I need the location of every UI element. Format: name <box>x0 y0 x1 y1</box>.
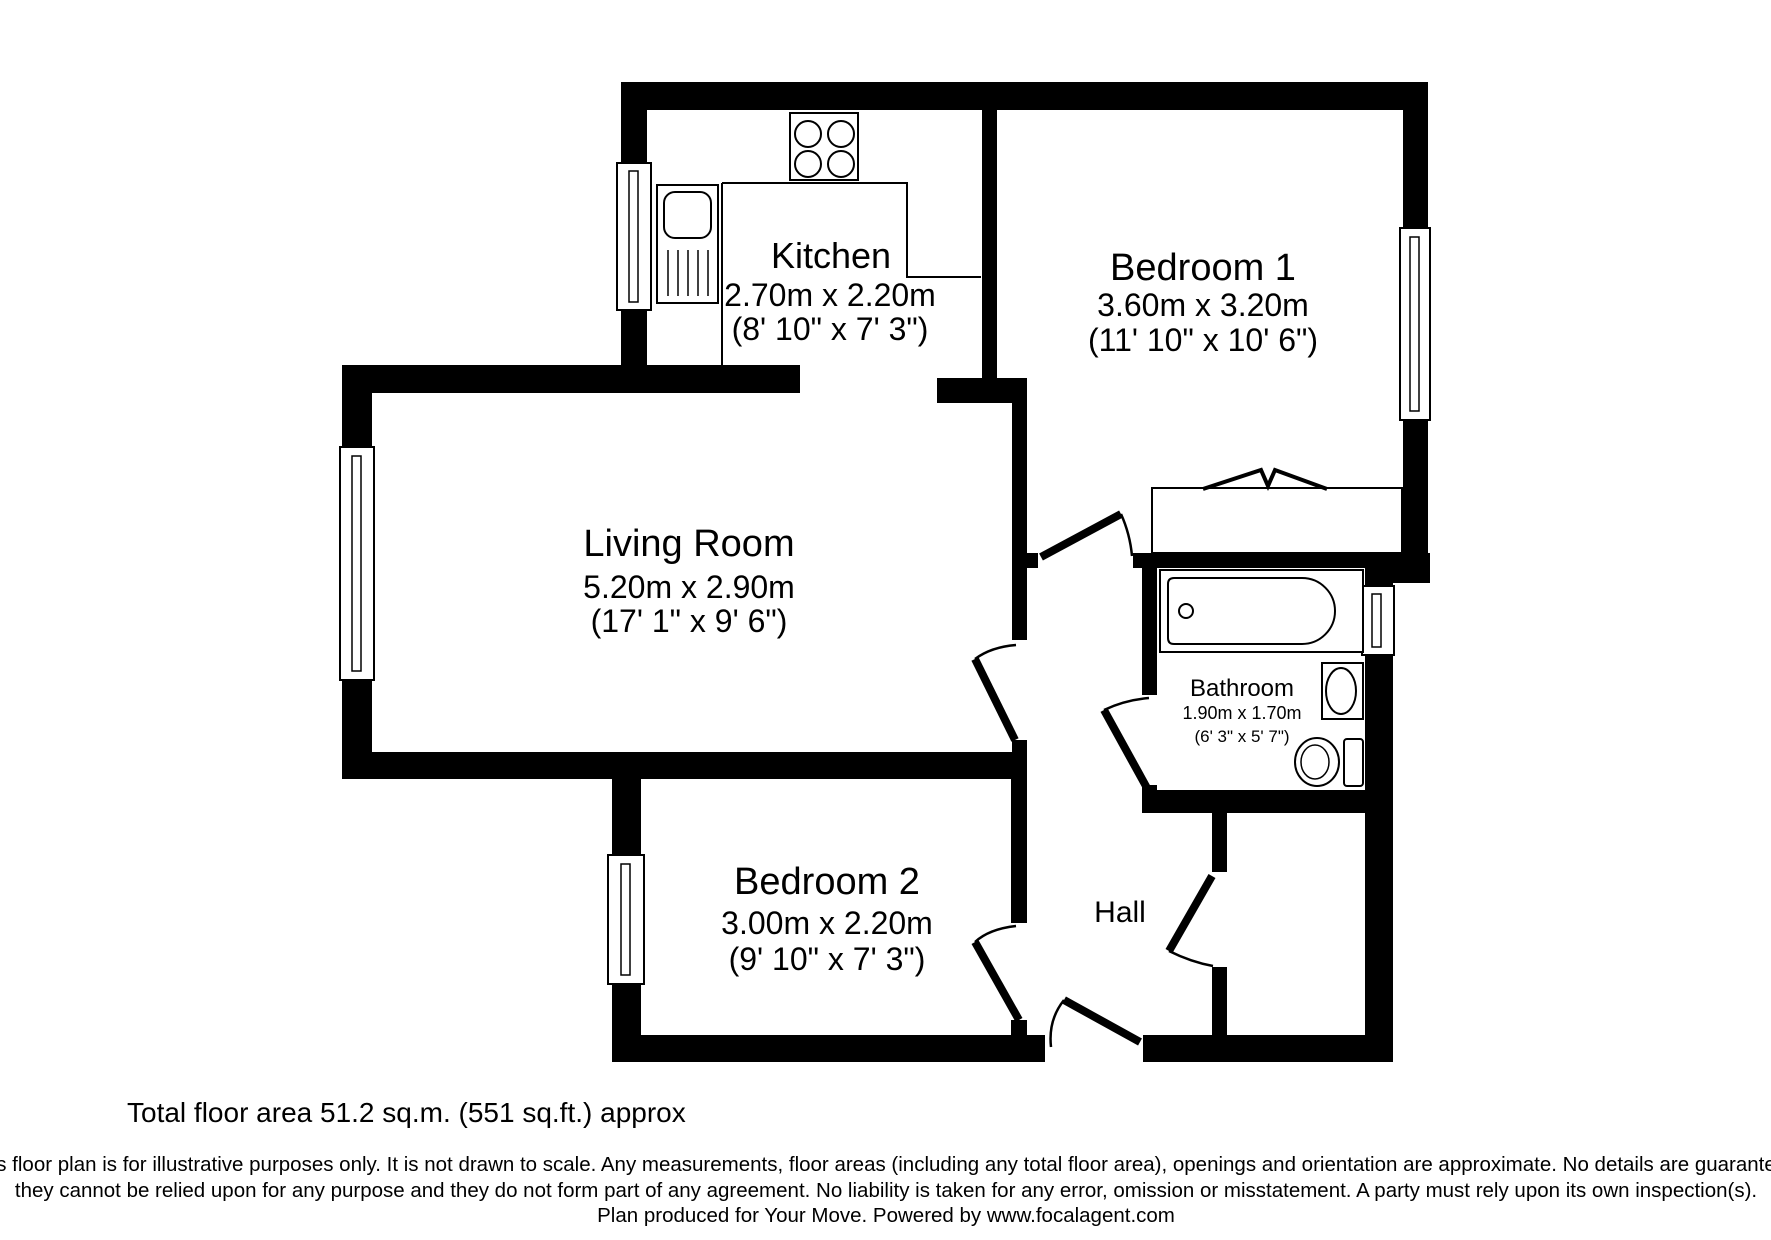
living-room-door <box>975 645 1016 740</box>
bathroom-dimensions-metric: 1.90m x 1.70m <box>1182 703 1301 723</box>
wall-living-east-lower <box>1012 740 1027 779</box>
window-kitchen-west <box>617 163 651 310</box>
footer: Total floor area 51.2 sq.m. (551 sq.ft.)… <box>0 1097 1771 1227</box>
kitchen-dimensions-imperial: (8' 10" x 7' 3") <box>732 311 929 347</box>
floor-plan-drawing: Kitchen 2.70m x 2.20m (8' 10" x 7' 3") B… <box>0 0 1771 1240</box>
wall-bedroom2-east <box>1011 779 1027 923</box>
wall-bathroom-west <box>1142 568 1157 695</box>
bathtub <box>1160 570 1363 652</box>
living-room-dimensions-metric: 5.20m x 2.90m <box>583 569 795 605</box>
wall-store-west-lower <box>1212 967 1227 1035</box>
bedroom2-dimensions-imperial: (9' 10" x 7' 3") <box>729 941 926 977</box>
bedroom1-dimensions-imperial: (11' 10" x 10' 6") <box>1088 322 1318 358</box>
disclaimer-line-2: they cannot be relied upon for any purpo… <box>15 1179 1757 1202</box>
wardrobe-outline <box>1152 488 1402 553</box>
bedroom1-label: Bedroom 1 <box>1110 247 1296 289</box>
bedroom1-wardrobe <box>1152 470 1402 553</box>
wall-bedroom1-south <box>1133 553 1430 568</box>
wall-top <box>621 82 1428 110</box>
wall-hall-north-stub <box>1027 553 1038 568</box>
wall-bottom <box>612 1035 1393 1062</box>
bedroom1-door <box>1041 514 1132 557</box>
total-floor-area: Total floor area 51.2 sq.m. (551 sq.ft.)… <box>127 1097 686 1128</box>
bathroom-label: Bathroom <box>1190 675 1294 702</box>
kitchen-label: Kitchen <box>771 235 891 276</box>
living-room-dimensions-imperial: (17' 1" x 9' 6") <box>591 603 788 639</box>
wall-bathroom-south <box>1142 790 1365 813</box>
window-bedroom1-east <box>1400 228 1430 420</box>
window-bedroom2-west <box>608 855 644 984</box>
bathroom-door <box>1104 698 1149 788</box>
wall-bedroom2-east-stub <box>1011 1020 1027 1035</box>
kitchen-dimensions-metric: 2.70m x 2.20m <box>724 277 936 313</box>
bedroom2-label: Bedroom 2 <box>734 861 920 903</box>
toilet-cistern <box>1344 739 1363 786</box>
floor-plan-page: Kitchen 2.70m x 2.20m (8' 10" x 7' 3") B… <box>0 0 1771 1240</box>
disclaimer-line-1: This floor plan is for illustrative purp… <box>0 1153 1771 1176</box>
wardrobe-symbol <box>1203 470 1327 489</box>
bathroom-dimensions-imperial: (6' 3" x 5' 7") <box>1194 727 1289 746</box>
wall-living-east-upper <box>1012 390 1027 640</box>
toilet-bowl-inner <box>1301 745 1329 779</box>
disclaimer-line-3: Plan produced for Your Move. Powered by … <box>597 1204 1175 1227</box>
bedroom1-dimensions-metric: 3.60m x 3.20m <box>1097 287 1309 323</box>
sink-basin <box>664 192 711 238</box>
window-bathroom-east <box>1362 586 1394 655</box>
basin-bowl <box>1326 668 1356 714</box>
wall-kitchen-east <box>982 110 997 390</box>
bedroom2-dimensions-metric: 3.00m x 2.20m <box>721 905 933 941</box>
store-door <box>1169 876 1213 966</box>
wall-living-top <box>342 365 800 393</box>
hall-label: Hall <box>1094 896 1146 929</box>
window-living-room-west <box>340 447 374 680</box>
bedroom2-door <box>975 926 1019 1020</box>
wall-living-bottom <box>342 752 1027 779</box>
living-room-label: Living Room <box>583 523 794 565</box>
wall-store-west-upper <box>1212 813 1227 872</box>
